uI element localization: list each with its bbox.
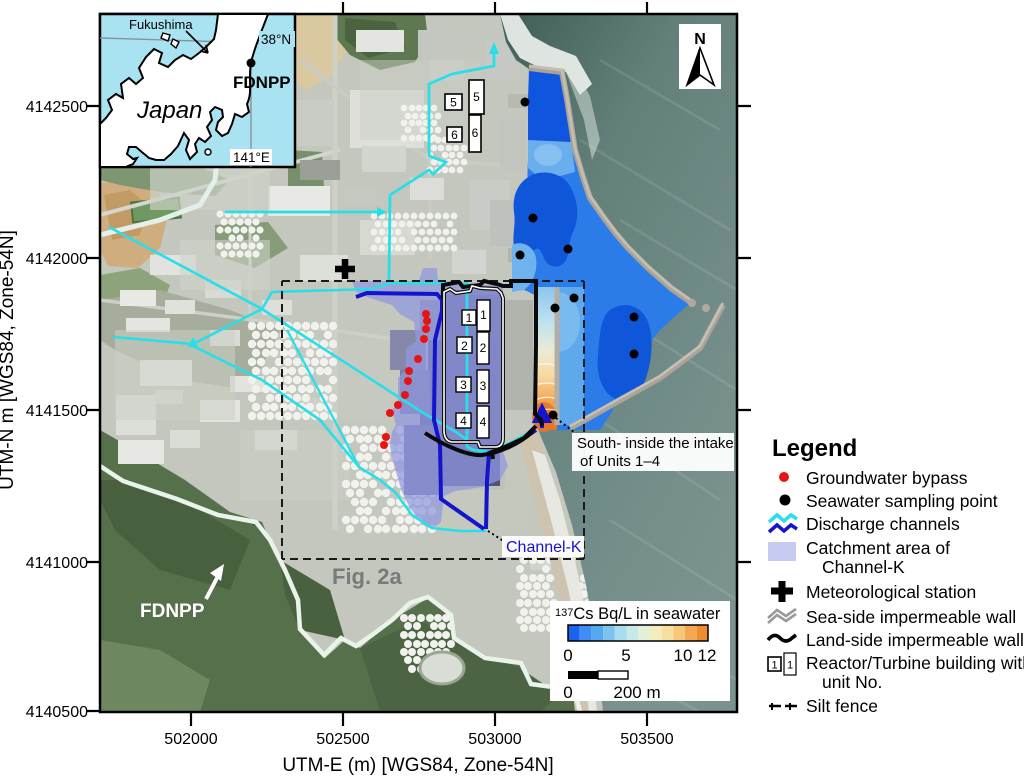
svg-text:Catchment area of: Catchment area of <box>806 538 950 558</box>
svg-text:6: 6 <box>451 128 458 142</box>
svg-text:Seawater sampling point: Seawater sampling point <box>806 491 998 511</box>
svg-text:3: 3 <box>480 379 487 393</box>
svg-text:Groundwater bypass: Groundwater bypass <box>806 468 968 488</box>
svg-text:502000: 502000 <box>164 731 217 748</box>
svg-text:1: 1 <box>771 660 777 672</box>
svg-text:4141500: 4141500 <box>26 403 88 420</box>
svg-text:0: 0 <box>563 683 572 702</box>
svg-text:Japan: Japan <box>136 97 202 124</box>
svg-text:Channel-K: Channel-K <box>822 557 905 577</box>
svg-text:0: 0 <box>563 646 572 665</box>
svg-text:2: 2 <box>480 341 487 355</box>
svg-text:6: 6 <box>472 126 479 140</box>
svg-text:4142000: 4142000 <box>26 251 88 268</box>
svg-text:200 m: 200 m <box>613 683 660 702</box>
svg-text:1: 1 <box>466 311 473 325</box>
svg-text:FDNPP: FDNPP <box>140 601 205 622</box>
svg-text:Channel-K: Channel-K <box>506 539 582 556</box>
svg-text:2: 2 <box>461 339 468 353</box>
svg-text:4: 4 <box>480 415 487 429</box>
svg-text:4141000: 4141000 <box>26 555 88 572</box>
svg-text:Silt fence: Silt fence <box>806 696 878 716</box>
svg-text:FDNPP: FDNPP <box>233 73 291 92</box>
svg-text:unit No.: unit No. <box>822 672 882 692</box>
svg-text:3: 3 <box>460 378 467 392</box>
svg-text:4: 4 <box>460 414 467 428</box>
svg-text:5: 5 <box>621 646 630 665</box>
svg-text:Sea-side impermeable wall: Sea-side impermeable wall <box>806 607 1016 627</box>
svg-text:502500: 502500 <box>316 731 369 748</box>
svg-text:UTM-N m [WGS84, Zone-54N]: UTM-N m [WGS84, Zone-54N] <box>0 230 18 490</box>
svg-text:UTM-E (m) [WGS84, Zone-54N]: UTM-E (m) [WGS84, Zone-54N] <box>282 755 553 776</box>
svg-text:503000: 503000 <box>468 731 521 748</box>
svg-text:Legend: Legend <box>772 435 857 462</box>
svg-text:503500: 503500 <box>620 731 673 748</box>
svg-text:Land-side impermeable wall: Land-side impermeable wall <box>806 630 1024 650</box>
svg-text:Meteorological station: Meteorological station <box>806 582 976 602</box>
svg-text:of Units 1–4: of Units 1–4 <box>580 453 660 470</box>
svg-text:Reactor/Turbine building with: Reactor/Turbine building with <box>806 653 1024 673</box>
svg-text:137Cs Bq/L in seawater: 137Cs Bq/L in seawater <box>555 605 721 623</box>
svg-text:5: 5 <box>473 90 480 104</box>
svg-text:Discharge channels: Discharge channels <box>806 514 960 534</box>
svg-text:5: 5 <box>450 96 457 110</box>
svg-text:Fig. 2a: Fig. 2a <box>332 564 402 589</box>
svg-text:Fukushima: Fukushima <box>129 17 193 32</box>
svg-text:N: N <box>694 31 706 48</box>
svg-text:1: 1 <box>480 308 487 322</box>
svg-text:12: 12 <box>698 646 717 665</box>
svg-text:4140500: 4140500 <box>26 704 88 721</box>
svg-text:141°E: 141°E <box>233 150 270 165</box>
svg-text:South- inside the intake: South- inside the intake <box>577 435 734 452</box>
svg-text:38°N: 38°N <box>261 32 291 47</box>
svg-text:1: 1 <box>787 660 793 672</box>
svg-text:4142500: 4142500 <box>26 99 88 116</box>
svg-text:10: 10 <box>674 646 693 665</box>
